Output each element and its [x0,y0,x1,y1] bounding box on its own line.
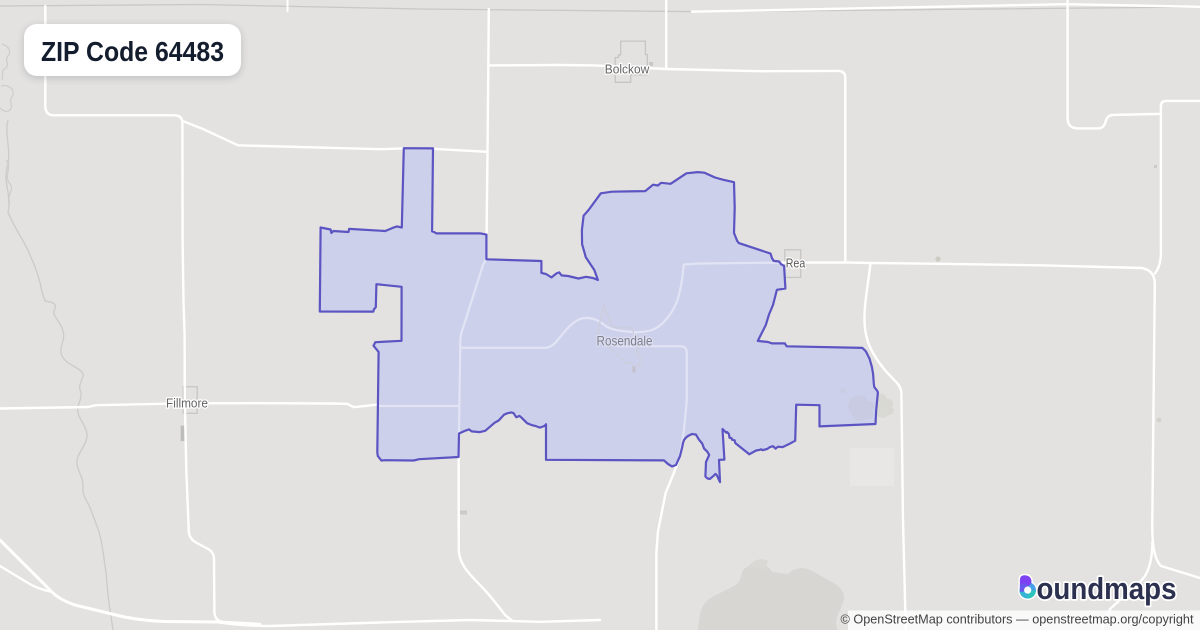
svg-text:Rea: Rea [786,255,806,270]
svg-text:Rosendale: Rosendale [597,334,653,349]
svg-text:Bolckow: Bolckow [605,62,650,77]
svg-text:oundmaps: oundmaps [1037,572,1177,606]
svg-text:© OpenStreetMap contributors: © OpenStreetMap contributors — openstree… [841,611,1194,626]
svg-text:Fillmore: Fillmore [166,396,208,411]
